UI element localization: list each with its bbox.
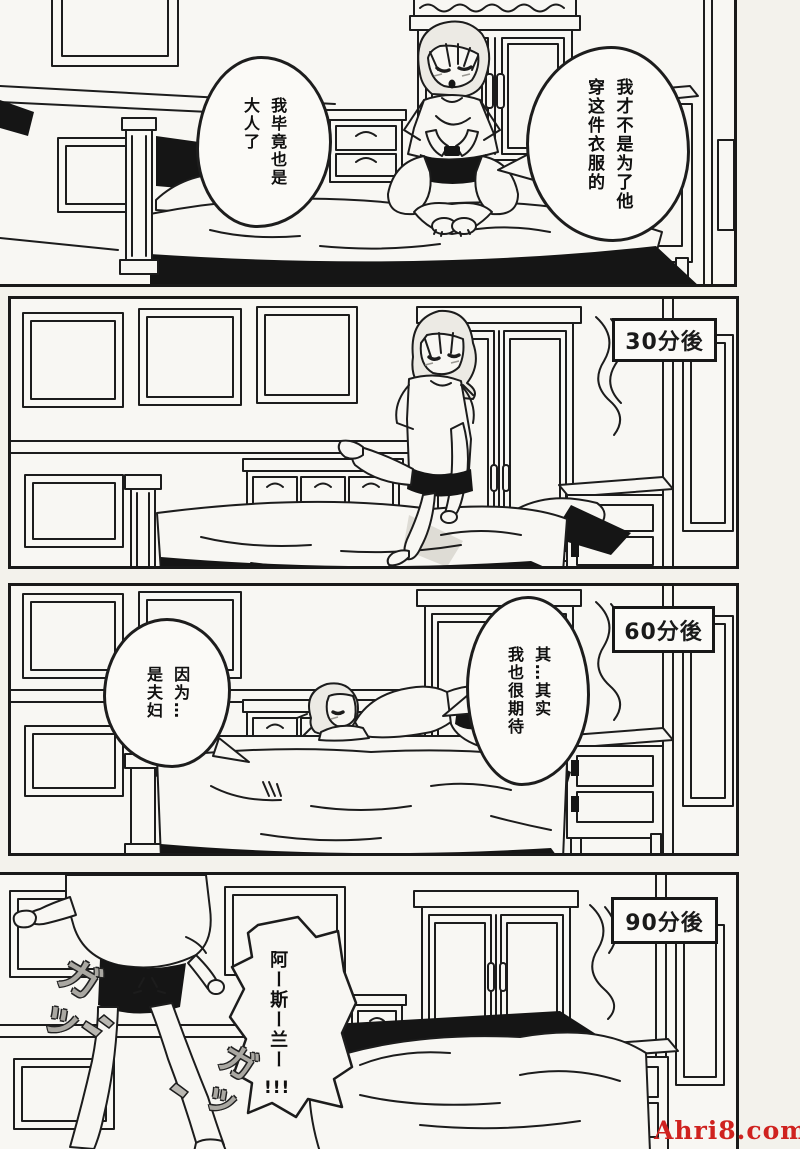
speech-text: 其…其实 我也很期待: [501, 646, 555, 736]
speech-line: 是夫妇: [140, 666, 167, 720]
speech-line: 因为…: [167, 666, 194, 720]
time-label-30min: 30分後: [612, 318, 717, 362]
speech-bubble-panel3-left: 因为… 是夫妇: [103, 618, 231, 768]
time-label-60min: 60分後: [612, 606, 715, 653]
wall-right: [704, 0, 734, 287]
time-label-text: 90分後: [625, 905, 704, 937]
shout-bubble-text: 阿ー斯ー兰ー !!!: [264, 950, 290, 1110]
speech-line: 穿这件衣服的: [580, 78, 608, 211]
speech-line: 我也很期待: [501, 646, 528, 736]
time-label-text: 60分後: [624, 614, 703, 646]
shout-exclamation: !!!: [264, 1078, 290, 1098]
speech-line: 我才不是为了他: [608, 78, 636, 211]
manga-page: { "watermark": "Ahri8.com", "panel1": { …: [0, 0, 800, 1149]
chest-of-drawers: [326, 110, 406, 182]
speech-line: 其…其实: [528, 646, 555, 736]
speech-text: 我才不是为了他 穿这件衣服的: [580, 78, 637, 211]
time-label-text: 30分後: [625, 324, 704, 356]
speech-text: 我毕竟也是 大人了: [237, 97, 291, 187]
shout-line: 阿ー斯ー兰ー: [267, 950, 288, 1070]
speech-bubble-panel1-right: 我才不是为了他 穿这件衣服的: [526, 46, 690, 242]
speech-text: 因为… 是夫妇: [140, 666, 194, 720]
speech-line: 大人了: [237, 97, 264, 187]
speech-line: 我毕竟也是: [264, 97, 291, 187]
time-label-90min: 90分後: [611, 897, 718, 944]
watermark-text: Ahri8.com: [654, 1116, 800, 1145]
